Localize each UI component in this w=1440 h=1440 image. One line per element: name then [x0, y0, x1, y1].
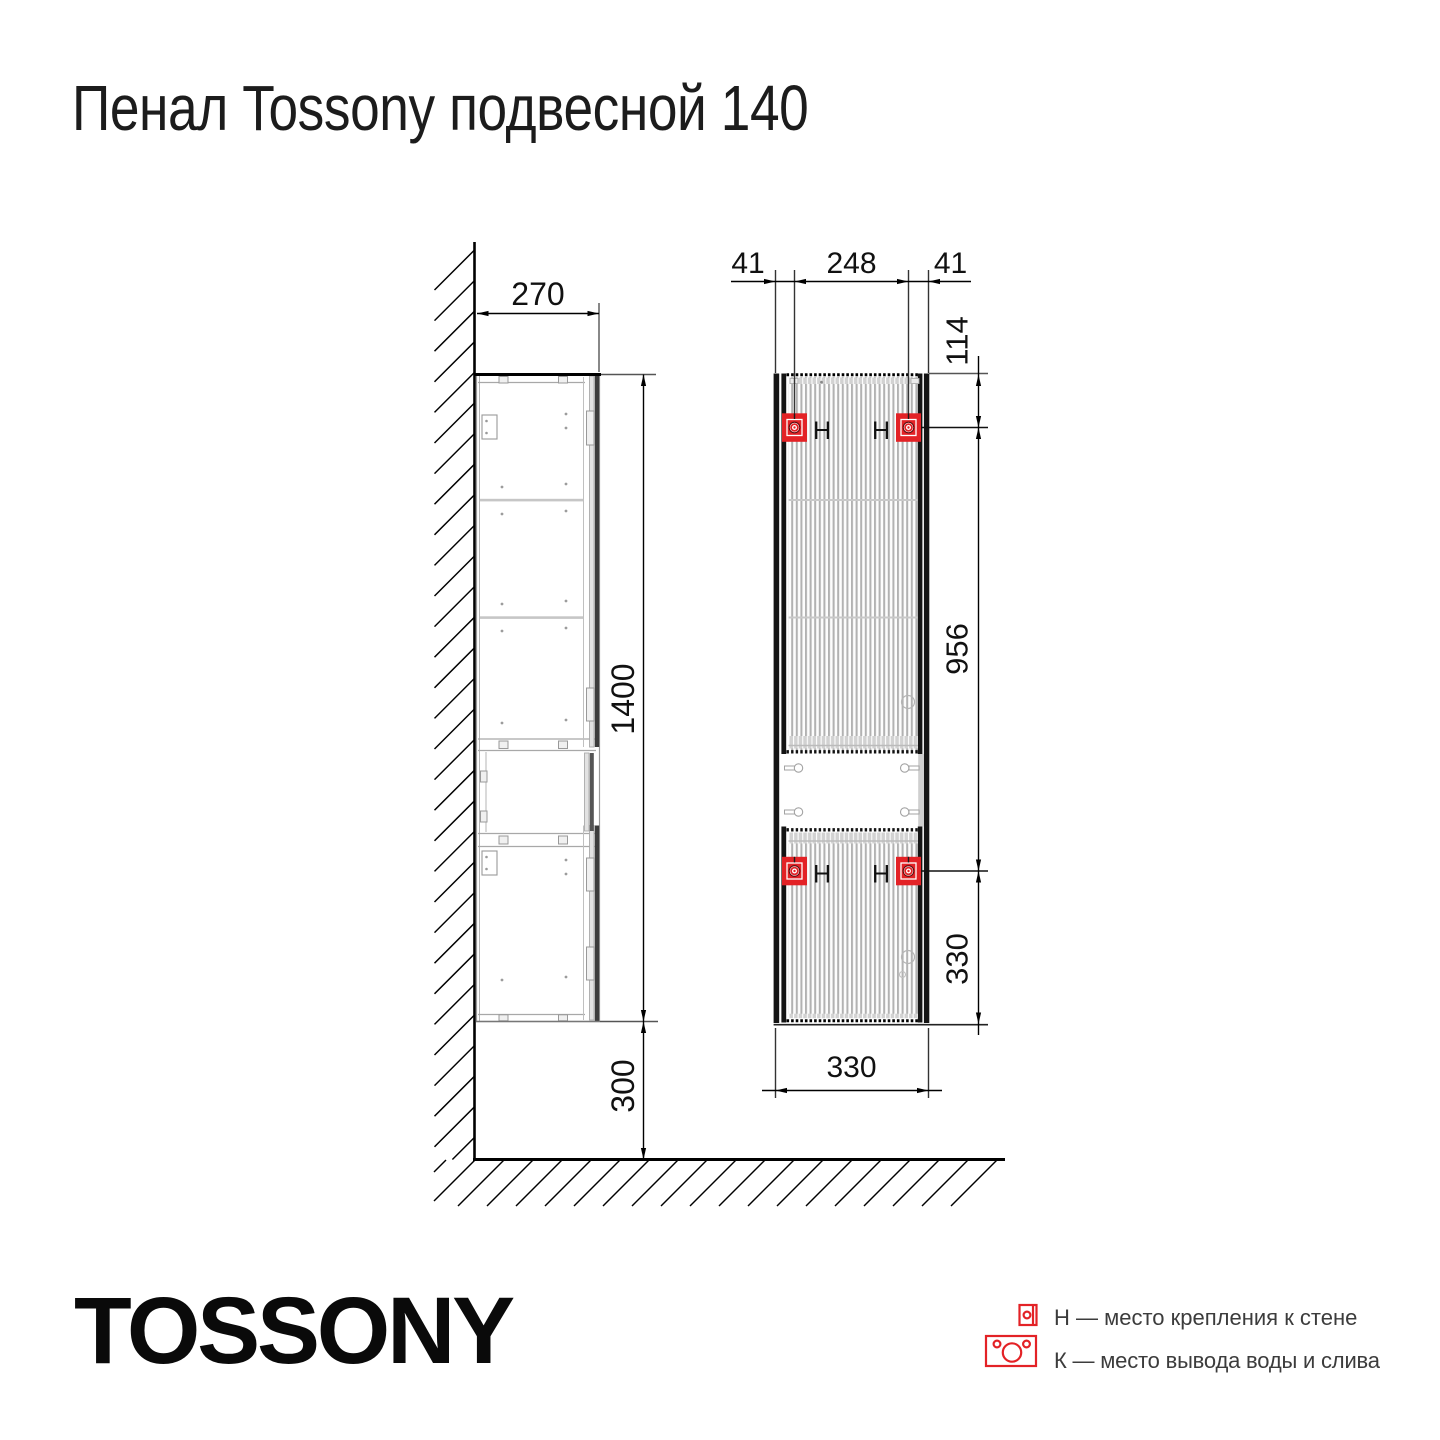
- svg-text:248: 248: [826, 247, 876, 280]
- svg-text:Н: Н: [872, 417, 890, 445]
- svg-text:270: 270: [511, 276, 564, 312]
- svg-text:К — место вывода воды и слива: К — место вывода воды и слива: [1054, 1348, 1381, 1373]
- svg-text:956: 956: [940, 623, 975, 675]
- svg-text:Н: Н: [813, 417, 831, 445]
- svg-text:41: 41: [731, 247, 764, 280]
- svg-text:Н: Н: [872, 861, 890, 889]
- svg-text:Н — место крепления к стене: Н — место крепления к стене: [1054, 1305, 1357, 1330]
- svg-text:41: 41: [934, 247, 967, 280]
- svg-text:300: 300: [605, 1059, 641, 1112]
- svg-text:Н: Н: [813, 861, 831, 889]
- svg-text:330: 330: [826, 1051, 876, 1084]
- svg-text:1400: 1400: [605, 663, 641, 734]
- svg-text:114: 114: [940, 316, 975, 365]
- svg-text:330: 330: [940, 933, 975, 985]
